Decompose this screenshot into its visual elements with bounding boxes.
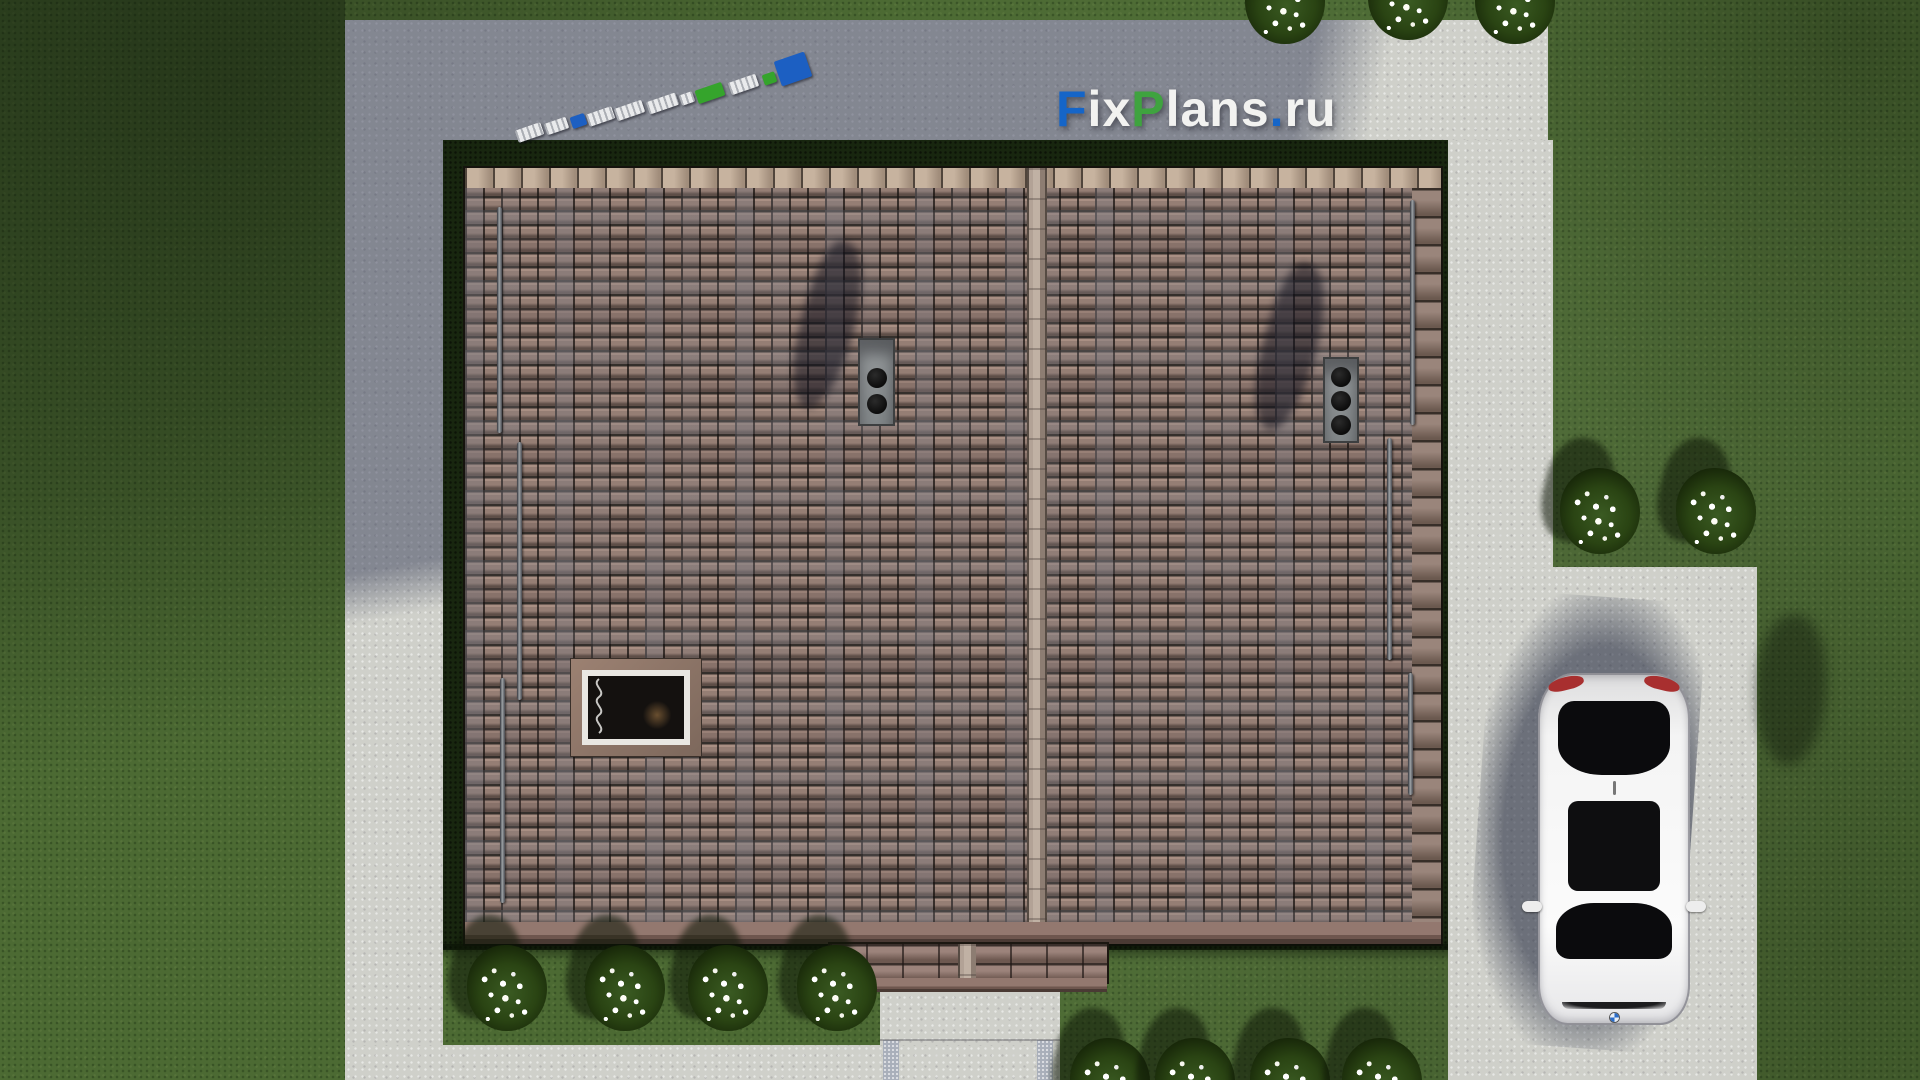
- flower-bush: [467, 945, 547, 1031]
- fixplans-watermark: FixPlans.ru: [1056, 80, 1337, 138]
- chimney-2: [1323, 357, 1359, 443]
- watermark-part: P: [1131, 81, 1165, 137]
- roof-right-rake-cap: [1412, 188, 1441, 922]
- roof-top-ridge-cap: [465, 168, 1441, 188]
- car-sunroof: [1568, 801, 1660, 891]
- car-mirror-left: [1522, 901, 1542, 912]
- car-rear-window: [1558, 701, 1670, 775]
- snow-guard-bar: [497, 207, 502, 433]
- snow-guard-bar: [1408, 673, 1413, 795]
- skylight-window: [570, 658, 702, 757]
- snow-guard-bar: [500, 678, 505, 903]
- flower-bush: [1368, 0, 1448, 40]
- watermark-part: lans: [1166, 81, 1270, 137]
- roof-center-ridge: [1027, 168, 1047, 922]
- house-shadow-left: [345, 140, 443, 640]
- flower-bush: [585, 945, 665, 1031]
- house-shadow-on-grass: [0, 0, 345, 760]
- walkway-inlay: [883, 1040, 899, 1080]
- flower-bush: [1245, 0, 1325, 44]
- flower-bush: [1342, 1038, 1422, 1080]
- flower-bush: [797, 945, 877, 1031]
- snow-guard-bar: [1387, 438, 1392, 660]
- concrete-right-path: [1448, 140, 1553, 567]
- car-windshield: [1556, 903, 1672, 959]
- skylight-reflection: [589, 677, 609, 738]
- render-canvas: FixPlans.ru: [0, 0, 1920, 1080]
- car-mirror-right: [1686, 901, 1706, 912]
- flower-bush: [1676, 468, 1756, 554]
- flower-bush: [1475, 0, 1555, 44]
- flower-bush: [1250, 1038, 1330, 1080]
- watermark-part: ru: [1285, 81, 1337, 137]
- flower-bush: [1155, 1038, 1235, 1080]
- snow-guard-bar: [1410, 200, 1415, 425]
- snow-guard-bar: [517, 442, 522, 700]
- concrete-bottom-band: [345, 1045, 1060, 1080]
- car-antenna: [1613, 781, 1616, 795]
- flower-bush: [1560, 468, 1640, 554]
- watermark-part: .: [1270, 81, 1285, 137]
- watermark-part: F: [1056, 81, 1088, 137]
- watermark-part: ix: [1088, 81, 1132, 137]
- car-front-bumper: [1562, 1002, 1666, 1009]
- chimney-1: [858, 338, 895, 426]
- step-edge: [880, 1039, 1060, 1041]
- white-car: [1538, 673, 1690, 1025]
- flower-bush: [688, 945, 768, 1031]
- car-emblem: [1610, 1013, 1619, 1022]
